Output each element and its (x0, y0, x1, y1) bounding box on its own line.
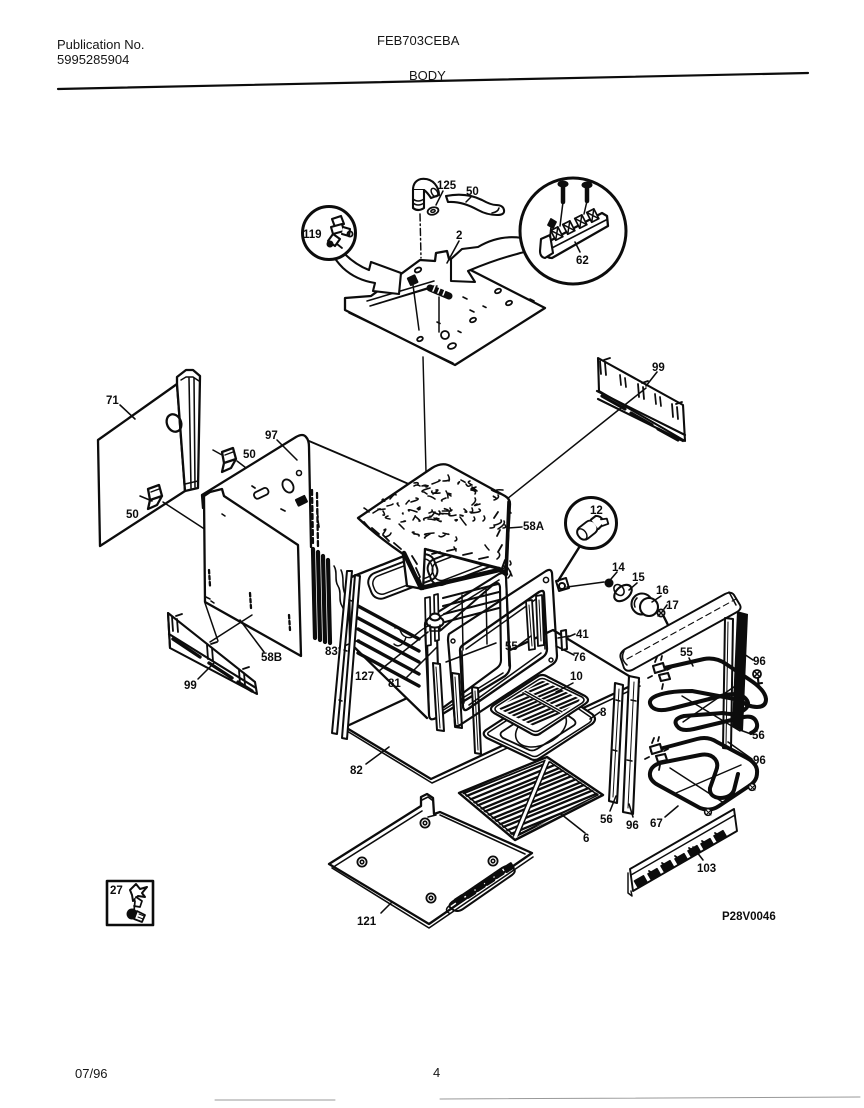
svg-text:12: 12 (590, 505, 603, 517)
svg-text:99: 99 (184, 680, 197, 692)
svg-text:62: 62 (576, 255, 589, 267)
svg-text:5995285904: 5995285904 (57, 52, 129, 67)
svg-text:96: 96 (753, 755, 766, 767)
svg-text:50: 50 (243, 449, 256, 461)
svg-text:P28V0046: P28V0046 (722, 911, 776, 923)
svg-text:99: 99 (652, 362, 665, 374)
svg-text:96: 96 (626, 820, 639, 832)
svg-text:55: 55 (680, 647, 693, 659)
svg-text:58B: 58B (261, 652, 282, 664)
svg-text:96: 96 (753, 656, 766, 668)
svg-text:27: 27 (110, 885, 123, 897)
svg-text:16: 16 (656, 585, 669, 597)
svg-text:17: 17 (666, 600, 679, 612)
svg-text:6: 6 (583, 833, 589, 845)
svg-text:07/96: 07/96 (75, 1066, 108, 1081)
svg-text:97: 97 (265, 430, 278, 442)
svg-text:56: 56 (752, 730, 765, 742)
svg-text:15: 15 (632, 572, 645, 584)
svg-text:81: 81 (388, 678, 401, 690)
svg-text:127: 127 (355, 671, 374, 683)
svg-text:41: 41 (576, 629, 589, 641)
svg-text:56: 56 (600, 814, 613, 826)
svg-text:50: 50 (466, 186, 479, 198)
svg-text:125: 125 (437, 180, 457, 192)
svg-text:14: 14 (612, 562, 625, 574)
svg-text:119: 119 (303, 229, 322, 241)
svg-text:8: 8 (600, 707, 607, 719)
svg-text:FEB703CEBA: FEB703CEBA (377, 33, 460, 48)
svg-text:67: 67 (650, 818, 663, 830)
svg-text:83: 83 (325, 646, 338, 658)
svg-text:4: 4 (433, 1065, 440, 1080)
svg-text:76: 76 (573, 652, 586, 664)
svg-text:Publication No.: Publication No. (57, 37, 144, 52)
svg-text:82: 82 (350, 765, 363, 777)
svg-text:71: 71 (106, 395, 119, 407)
svg-text:58A: 58A (523, 521, 544, 533)
svg-text:121: 121 (357, 916, 377, 928)
svg-text:2: 2 (456, 230, 462, 242)
svg-text:103: 103 (697, 863, 716, 875)
svg-text:55: 55 (505, 641, 518, 653)
svg-text:10: 10 (570, 671, 583, 683)
svg-text:50: 50 (126, 509, 139, 521)
